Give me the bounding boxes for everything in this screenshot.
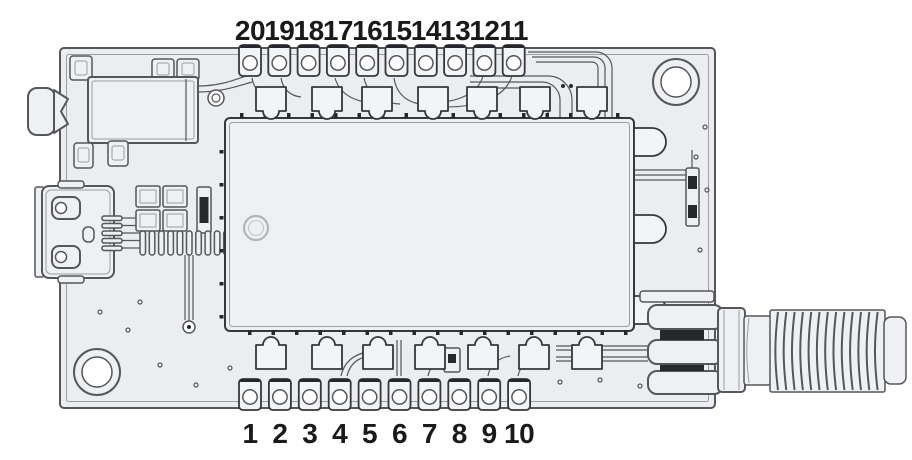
audio-jack-barrel [28,88,55,135]
shield-tick [624,330,628,335]
shield-tick [436,330,440,335]
pin-hole-top-17 [331,56,345,70]
shield-tick [248,330,252,335]
shield-tick [483,330,487,335]
shield-tick [220,282,224,286]
pin-label-bottom-10: 10 [504,418,534,449]
micro-usb-connector [35,181,122,283]
sma-finger [648,371,723,394]
shield-tick [554,330,558,335]
pin-hole-bottom-10 [512,390,526,404]
shield-tick [405,113,409,118]
pin-hole-top-11 [507,56,521,70]
pin-hole-bottom-8 [452,390,466,404]
shield-tick [577,330,581,335]
shield-tick [240,113,244,118]
pin-label-bottom-9: 9 [482,418,497,449]
pin-hole-top-12 [477,56,491,70]
shield-tick [220,183,224,187]
pin-hole-bottom-9 [482,390,496,404]
pin-label-top-11: 11 [499,15,528,46]
sma-antenna-connector [640,291,906,394]
shield-tick [413,330,417,335]
pin-hole-top-18 [301,56,315,70]
pin-label-bottom-1: 1 [242,418,257,449]
pin-hole-bottom-2 [273,390,287,404]
shield-tick [507,330,511,335]
shield-tick [389,330,393,335]
audio-jack-body [88,77,198,143]
pin-label-top-16: 16 [352,15,382,46]
pin-hole-bottom-1 [243,390,257,404]
pin-hole-bottom-7 [422,390,436,404]
sma-flange [718,308,745,392]
shield-tick [220,216,224,220]
pin-label-top-15: 15 [381,15,411,46]
pin-label-top-13: 13 [440,15,470,46]
side-pad [634,128,666,156]
pin-label-bottom-2: 2 [272,418,287,449]
shield-tick [342,330,346,335]
pin-label-bottom-6: 6 [392,418,407,449]
pcb-pinout-diagram: 2019181716151413121112345678910 [0,0,912,460]
pin-hole-top-19 [272,56,286,70]
sma-tip [884,317,906,384]
shield-tick [220,315,224,319]
shield-tick [220,249,224,253]
shield-tick [569,113,573,118]
shield-tick [452,113,456,118]
pin-hole-top-20 [243,56,257,70]
pin-hole-top-15 [389,56,403,70]
sma-finger [648,305,723,329]
side-pad [634,215,666,243]
pin-label-bottom-3: 3 [302,418,317,449]
pin-hole-top-16 [360,56,374,70]
shield-tick [616,113,620,118]
mounting-hole-bottom-left [74,349,120,395]
shield-can [225,118,634,331]
shield-tick [287,113,291,118]
pin-label-bottom-8: 8 [452,418,467,449]
pin-label-top-18: 18 [294,15,324,46]
pin-hole-bottom-3 [303,390,317,404]
pin-hole-bottom-5 [362,390,376,404]
pin-label-top-19: 19 [264,15,294,46]
shield-tick [522,113,526,118]
shield-tick [499,113,503,118]
pin-hole-top-13 [448,56,462,70]
shield-tick [358,113,362,118]
pin-hole-top-14 [419,56,433,70]
pin-label-bottom-5: 5 [362,418,377,449]
usb-contacts [102,216,122,251]
pin-label-top-14: 14 [411,15,442,46]
diagram-canvas: 2019181716151413121112345678910 [0,0,912,460]
pin-label-top-17: 17 [323,15,353,46]
shield-tick [546,113,550,118]
rf-shield-module [225,118,634,331]
shield-tick [601,330,605,335]
shield-tick [311,113,315,118]
mounting-hole-top-right [653,59,699,105]
shield-tick [530,330,534,335]
pin-label-top-20: 20 [235,15,265,46]
shield-tick [366,330,370,335]
sma-finger [648,340,723,364]
pin-hole-bottom-4 [333,390,347,404]
shield-tick [460,330,464,335]
pin-label-top-12: 12 [469,15,499,46]
pin-label-bottom-7: 7 [422,418,437,449]
pin-hole-bottom-6 [392,390,406,404]
shield-tick [272,330,276,335]
shield-tick [295,330,299,335]
pin-label-bottom-4: 4 [332,418,348,449]
shield-tick [220,150,224,154]
shield-tick [319,330,323,335]
